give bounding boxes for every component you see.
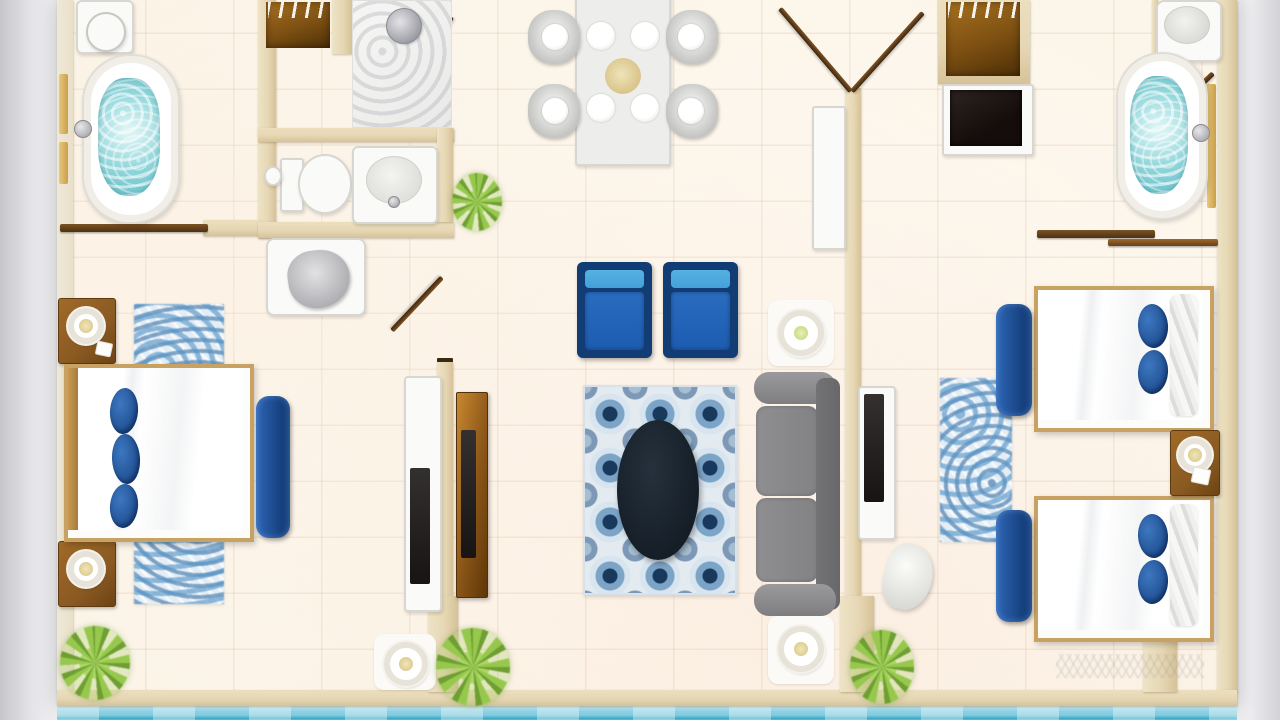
water-band [57,704,1237,720]
wall-shower-bottom [258,128,454,142]
plant-living-bottom-icon [436,628,510,706]
bathtub-right-faucet [1192,124,1210,142]
bathtub-left-water [98,78,160,196]
floor-lamp-left-bedroom-icon [384,642,428,686]
floor-lamp-sofa-top-icon [778,310,824,356]
floor-plan-image [0,0,1280,720]
wall-shelf-left-2 [59,142,68,184]
tv-screen-living [461,430,476,558]
bathtub-left-faucet [74,120,92,138]
shower-head-icon [386,8,422,44]
wall-shelf-right [1207,84,1216,208]
twin-bed-2 [1034,496,1214,642]
table-centerpiece [605,58,641,94]
sliding-door-right-bathroom-2 [1108,239,1218,246]
sofa-gray [752,372,844,616]
wall-shelf-left-1 [59,74,68,134]
twin-bed-1-blanket [1170,294,1198,416]
sliding-door-right-bathroom-1 [1037,230,1155,238]
watermark [1056,654,1204,678]
chair-cushion-4 [678,98,704,124]
dining-chair-2 [528,84,580,138]
sofa-backrest [816,378,840,610]
armchair-1-seat [585,292,644,350]
bathtub-right-water [1130,76,1188,194]
sink-faucet-mid [388,196,400,208]
dining-chair-1 [528,10,580,64]
bed-left-double [64,364,254,542]
chair-cushion-2 [542,98,568,124]
wall-outer-right [1217,0,1237,692]
sofa-armrest-bottom [754,584,836,616]
closet-right-hangers-icon [948,2,1018,18]
foot-bench-twin-2 [996,510,1032,622]
stove-black-top [950,90,1022,146]
lamp-left-top-icon [68,308,104,344]
dining-chair-4 [666,84,718,138]
wall-midbath-right [437,128,453,222]
toilet-top-left-bowl [86,12,126,52]
closet-hangers-icon [268,2,328,18]
plant-right-bedroom-icon [850,630,914,704]
bed-left-duvet [78,368,242,530]
foot-bench-twin-1 [996,304,1032,416]
wall-midbath-bottom [258,222,454,238]
photo-margin-right [1237,0,1280,720]
plate-1 [587,22,615,50]
toilet-mid-bowl [298,154,352,214]
plate-4 [631,94,659,122]
twin-bed-1 [1034,286,1214,432]
plant-left-bedroom-icon [60,626,130,700]
sofa-seat-1 [756,406,818,496]
armchair-blue-2 [663,262,738,358]
sliding-door-left-bathroom [60,224,208,232]
chair-cushion-3 [678,24,704,50]
dresser-right-tv-panel [864,394,884,502]
wall-closet-right-stub [332,0,352,54]
notepad-right [1191,466,1212,485]
dresser-left-tv-panel [410,468,430,584]
notepad-left-top [95,340,114,357]
twin-bed-2-blanket [1170,504,1198,626]
floor-lamp-sofa-bottom-icon [778,626,824,672]
sofa-seat-2 [756,498,818,582]
foot-bench-left-bed [256,396,290,538]
chair-cushion-1 [542,24,568,50]
dining-table [575,0,671,166]
sink-top-right-basin [1164,6,1210,44]
armchair-2-seat [671,292,730,350]
plate-2 [631,22,659,50]
armchair-1-headrest [585,270,644,288]
armchair-blue-1 [577,262,652,358]
plate-3 [587,94,615,122]
photo-margin-left [0,0,57,720]
dining-chair-3 [666,10,718,64]
coffee-table-oval [617,420,699,560]
plant-hallway-icon [452,173,502,231]
wall-leftbath-bottom-stub [203,220,260,236]
entry-console-table [812,106,846,250]
lamp-left-bottom-icon [68,551,104,587]
armchair-2-headrest [671,270,730,288]
wall-outer-bottom [57,690,1237,706]
bed-left-headboard [68,368,78,530]
paper-roll-icon [264,166,282,186]
